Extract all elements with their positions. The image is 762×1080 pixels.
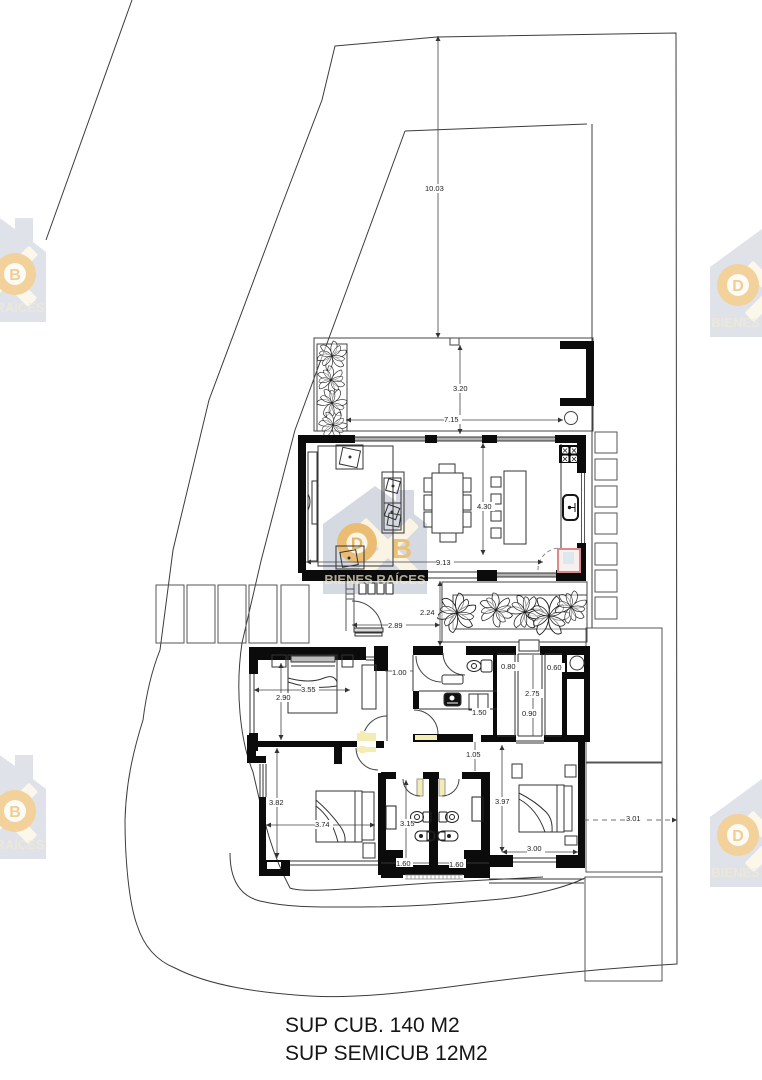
svg-text:2.89: 2.89 [388,621,403,630]
svg-text:3.74: 3.74 [315,820,330,829]
svg-text:0.80: 0.80 [501,662,516,671]
svg-text:3.97: 3.97 [495,797,510,806]
svg-text:3.20: 3.20 [453,384,468,393]
svg-text:3.01: 3.01 [626,814,641,823]
svg-text:3.15: 3.15 [400,819,415,828]
svg-text:SUP CUB. 140 M2: SUP CUB. 140 M2 [285,1014,460,1037]
svg-text:2.24: 2.24 [420,608,435,617]
svg-text:SUP SEMICUB 12M2: SUP SEMICUB 12M2 [285,1042,488,1065]
svg-text:0.90: 0.90 [522,709,537,718]
svg-text:2.75: 2.75 [525,689,540,698]
svg-text:4.30: 4.30 [477,502,492,511]
svg-text:0.60: 0.60 [547,663,562,672]
svg-text:10.03: 10.03 [425,184,444,193]
svg-text:1.60: 1.60 [396,859,411,868]
svg-text:1.05: 1.05 [466,750,481,759]
svg-text:3.00: 3.00 [527,844,542,853]
svg-text:1.60: 1.60 [449,860,464,869]
svg-text:3.82: 3.82 [269,798,284,807]
svg-text:9.13: 9.13 [436,558,451,567]
svg-text:3.55: 3.55 [301,685,316,694]
svg-text:7.15: 7.15 [444,415,459,424]
svg-text:2.90: 2.90 [276,693,291,702]
svg-text:1.50: 1.50 [472,708,487,717]
svg-text:1.00: 1.00 [392,668,407,677]
